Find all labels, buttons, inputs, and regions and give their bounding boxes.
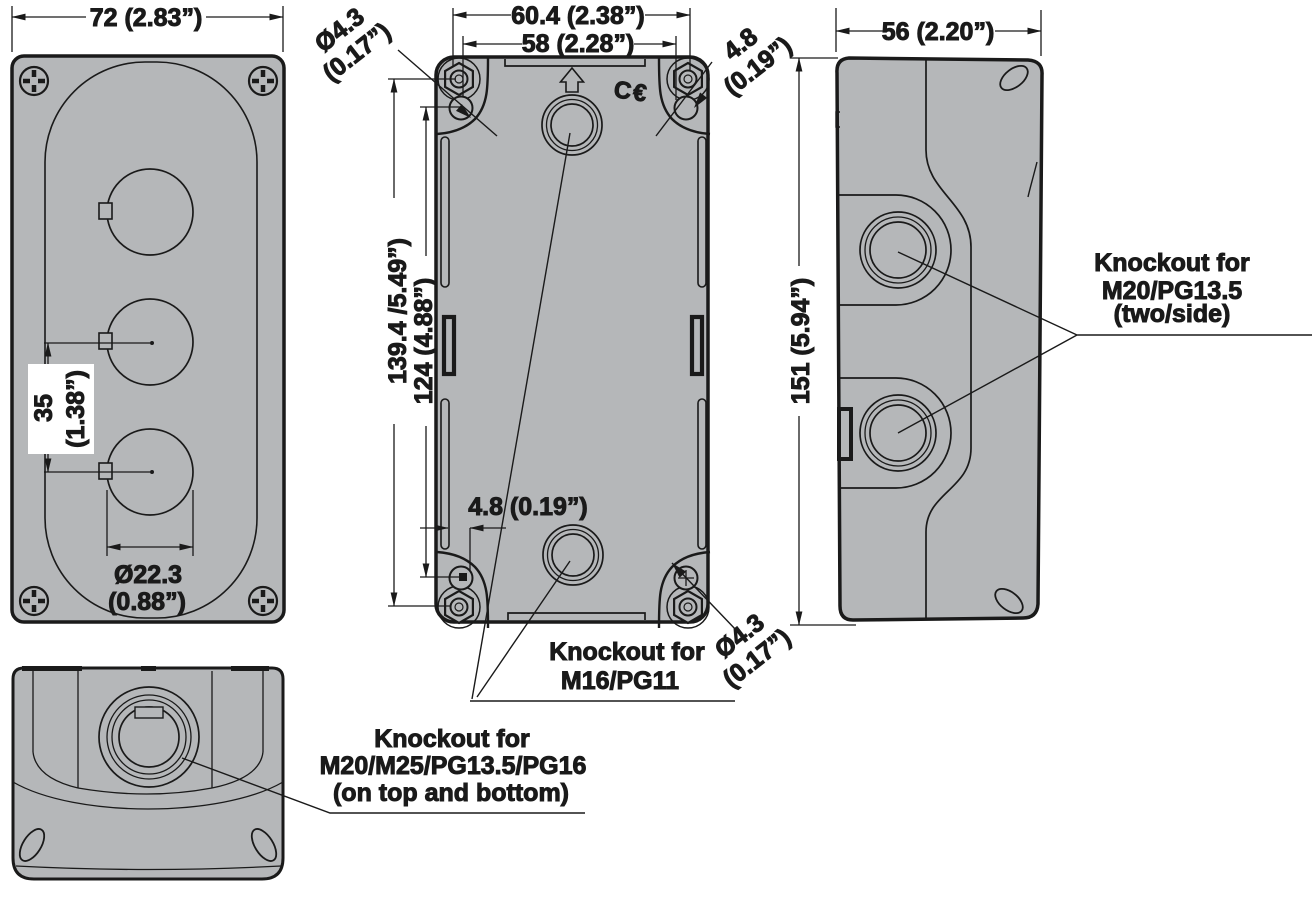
drawing-svg: 72 (2.83”) 35 (1.38”) Ø22.3 (0.88”) [0, 0, 1314, 899]
screw-top-left [20, 67, 48, 95]
back-view: C€ [436, 57, 710, 628]
dim-side-depth-text: 56 (2.20”) [882, 18, 995, 46]
callout-mount-hole-lower: Ø4.3 (0.17”) [669, 560, 796, 693]
front-view [12, 56, 284, 622]
side-body [837, 58, 1042, 620]
dim-diameter-mm: Ø22.3 [114, 561, 182, 589]
technical-drawing-enclosure: 72 (2.83”) 35 (1.38”) Ø22.3 (0.88”) [0, 0, 1314, 899]
knockout-top-line3: (on top and bottom) [333, 779, 569, 807]
dim-side-height-text: 151 (5.94”) [787, 278, 815, 404]
knockout-ends-line2: M16/PG11 [561, 667, 679, 695]
back-body [436, 57, 708, 622]
button-hole-2 [107, 299, 193, 385]
top-view [13, 666, 283, 879]
dim-spacing-mm: 35 [30, 394, 58, 422]
knockout-side-line1: Knockout for [1094, 249, 1250, 277]
side-view [836, 58, 1042, 620]
dim-hole-height-text: 124 (4.88”) [410, 278, 438, 404]
dim-spacing-in: (1.38”) [62, 370, 90, 448]
knockout-top-line1: Knockout for [374, 725, 530, 753]
dim-slot-width-text: 60.4 (2.38”) [511, 2, 644, 30]
dim-front-width: 72 (2.83”) [12, 3, 283, 52]
dim-hole-width-text: 58 (2.28”) [522, 30, 635, 58]
hole-notch-1 [99, 203, 112, 219]
ce-mark: C€ [612, 76, 650, 108]
hole-notch-2 [99, 333, 112, 349]
center-dot-1 [150, 341, 154, 345]
screw-top-right [249, 67, 277, 95]
knockout-tab [135, 707, 163, 718]
center-dot-2 [150, 470, 154, 474]
top-tab-3 [231, 666, 269, 671]
dim-front-width-text: 72 (2.83”) [90, 4, 203, 32]
dim-diameter-in: (0.88”) [108, 588, 186, 616]
dim-slot-height-text: 139.4 /5.49”) [384, 238, 412, 384]
knockout-ends-line1: Knockout for [549, 638, 705, 666]
screw-bottom-right [249, 587, 277, 615]
dim-side-depth: 56 (2.20”) [836, 8, 1041, 56]
hole-notch-3 [99, 463, 112, 479]
knockout-top-line2: M20/M25/PG13.5/PG16 [320, 752, 587, 780]
screw-bottom-left [20, 587, 48, 615]
dim-hole-offset-text: 4.8 (0.19”) [468, 493, 588, 521]
button-hole-1 [107, 169, 193, 255]
top-tab-1 [22, 666, 82, 671]
knockout-side-line3: (two/side) [1114, 300, 1231, 328]
top-tab-2 [141, 666, 156, 671]
